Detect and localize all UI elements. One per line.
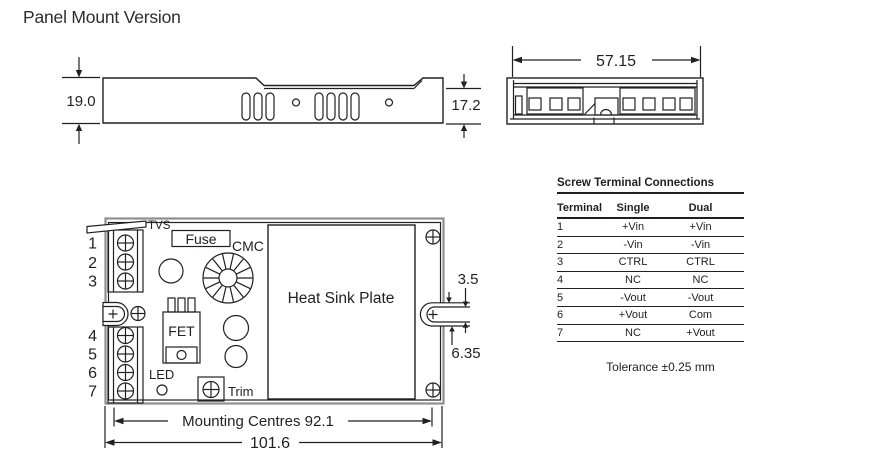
cmc-label: CMC xyxy=(232,238,264,254)
terminal-block-1-3 xyxy=(108,230,143,292)
capacitor xyxy=(225,346,247,368)
cell-terminal: 4 xyxy=(557,274,609,286)
table-title: Screw Terminal Connections xyxy=(557,177,744,194)
col-header-dual: Dual xyxy=(657,202,744,214)
vent-slots-left xyxy=(242,93,274,120)
cmc-toroid xyxy=(203,253,253,303)
heat-sink-label: Heat Sink Plate xyxy=(288,290,395,307)
end-view-transistor xyxy=(585,98,619,124)
cell-dual: CTRL xyxy=(657,256,744,268)
cell-dual: Com xyxy=(657,309,744,321)
dim-mounting-centres: Mounting Centres 92.1 xyxy=(114,408,432,431)
cell-terminal: 7 xyxy=(557,327,609,339)
end-view-drawing: 57.15 xyxy=(507,46,703,124)
dim-height-label: 19.0 xyxy=(66,93,95,110)
screw-icon xyxy=(131,307,145,321)
dim-slot-offset-label: 6.35 xyxy=(451,345,480,362)
mounting-slot-left xyxy=(103,303,128,326)
cell-single: CTRL xyxy=(609,256,657,268)
cell-terminal: 3 xyxy=(557,256,609,268)
col-header-single: Single xyxy=(609,202,657,214)
cell-terminal: 1 xyxy=(557,221,609,233)
dim-end-height: 17.2 xyxy=(446,74,481,138)
table-row: 3 CTRL CTRL xyxy=(557,254,744,272)
heat-sink-plate xyxy=(268,225,415,399)
screw-icon xyxy=(426,383,440,397)
cell-single: -Vin xyxy=(609,239,657,251)
table-row: 6 +Vout Com xyxy=(557,307,744,325)
screw-icon xyxy=(426,230,440,244)
table-row: 2 -Vin -Vin xyxy=(557,237,744,255)
dim-overall-width-label: 101.6 xyxy=(250,435,290,452)
cell-terminal: 2 xyxy=(557,239,609,251)
mounting-slot-right xyxy=(420,303,470,326)
terminal-number: 5 xyxy=(88,347,97,364)
dim-width: 57.15 xyxy=(513,46,701,77)
end-view-standoff xyxy=(516,96,523,114)
side-hole-left xyxy=(293,99,300,106)
table-row: 7 NC +Vout xyxy=(557,325,744,343)
dim-mounting-centres-label: Mounting Centres 92.1 xyxy=(182,413,334,430)
screw-icon xyxy=(203,382,219,398)
cell-single: +Vout xyxy=(609,309,657,321)
end-view-terminal-block-right xyxy=(620,88,695,114)
tvs-label: TVS xyxy=(148,220,171,232)
dim-slot-width-label: 3.5 xyxy=(458,271,479,288)
cell-single: NC xyxy=(609,274,657,286)
cell-single: -Vout xyxy=(609,292,657,304)
panel-mount-drawing-page: Panel Mount Version xyxy=(0,0,870,469)
tolerance-note: Tolerance ±0.25 mm xyxy=(567,360,754,374)
cell-single: NC xyxy=(609,327,657,339)
cell-dual: +Vout xyxy=(657,327,744,339)
table-row: 1 +Vin +Vin xyxy=(557,219,744,237)
capacitor xyxy=(224,316,249,341)
dim-height: 19.0 xyxy=(62,57,100,144)
cell-dual: -Vout xyxy=(657,292,744,304)
cell-terminal: 6 xyxy=(557,309,609,321)
vent-slots-right xyxy=(315,93,359,120)
terminal-block-4-7 xyxy=(108,327,143,403)
dim-end-height-label: 17.2 xyxy=(451,97,480,114)
end-view-terminal-block-left xyxy=(527,88,583,114)
dim-width-label: 57.15 xyxy=(596,53,636,70)
fet-label: FET xyxy=(168,323,195,339)
terminal-number: 3 xyxy=(88,274,97,291)
pcb-view-drawing: Heat Sink Plate xyxy=(87,219,481,453)
side-view-drawing: 19.0 17.2 xyxy=(62,57,481,144)
table-header-row: Terminal Single Dual xyxy=(557,202,744,219)
terminal-number: 2 xyxy=(88,255,97,272)
col-header-terminal: Terminal xyxy=(557,202,609,214)
cell-dual: +Vin xyxy=(657,221,744,233)
cell-dual: -Vin xyxy=(657,239,744,251)
led-component xyxy=(157,385,167,395)
terminal-number: 1 xyxy=(88,236,97,253)
side-hole-right xyxy=(386,99,393,106)
cell-dual: NC xyxy=(657,274,744,286)
terminal-number: 6 xyxy=(88,365,97,382)
terminal-number: 4 xyxy=(88,328,97,345)
fuse-label: Fuse xyxy=(185,231,216,247)
capacitor xyxy=(159,259,183,283)
terminal-numbers: 1 2 3 4 5 6 7 xyxy=(88,236,97,401)
led-label: LED xyxy=(149,367,174,382)
screw-terminal-table: Screw Terminal Connections Terminal Sing… xyxy=(557,177,744,342)
terminal-number: 7 xyxy=(88,384,97,401)
cell-single: +Vin xyxy=(609,221,657,233)
table-row: 4 NC NC xyxy=(557,272,744,290)
trim-label: Trim xyxy=(228,384,254,399)
table-row: 5 -Vout -Vout xyxy=(557,289,744,307)
cell-terminal: 5 xyxy=(557,292,609,304)
